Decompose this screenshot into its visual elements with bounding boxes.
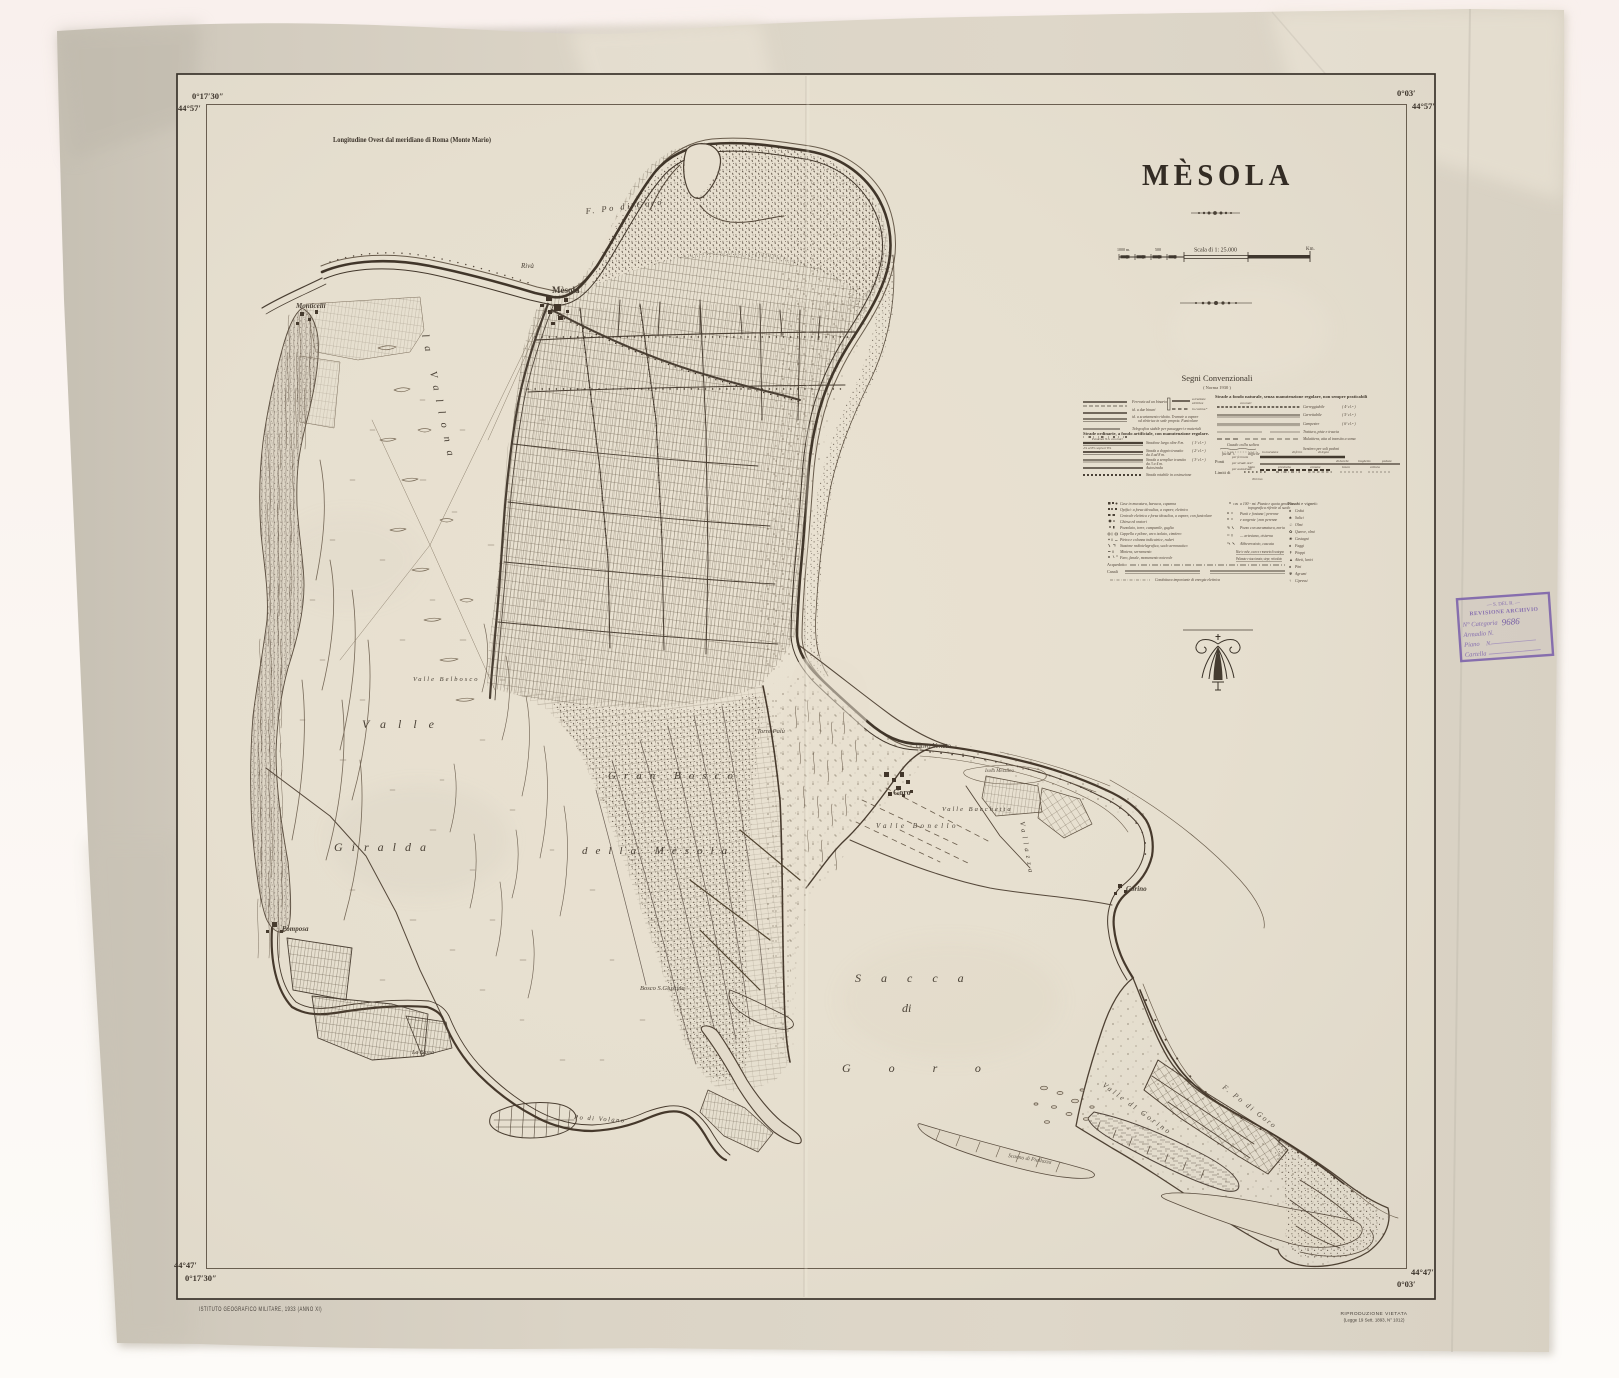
svg-text:44°57′: 44°57′ xyxy=(178,103,201,113)
svg-text:Carrettabile: Carrettabile xyxy=(1303,413,1322,417)
svg-text:Cedui: Cedui xyxy=(1295,509,1304,513)
svg-text:( 1ª cl.ᵐ ): ( 1ª cl.ᵐ ) xyxy=(1192,441,1206,445)
svg-text:Cipressi: Cipressi xyxy=(1295,579,1308,583)
svg-text:Valle: Valle xyxy=(362,717,446,731)
svg-text:44°47′: 44°47′ xyxy=(1411,1267,1434,1277)
svg-text:Punti e fontana | perenne: Punti e fontana | perenne xyxy=(1239,512,1279,516)
svg-text:Pendenze N.S. con: Pendenze N.S. con muri xyxy=(1091,437,1123,441)
svg-text:( 3ª cl.ᵐ ): ( 3ª cl.ᵐ ) xyxy=(1192,458,1206,462)
svg-text:RIPRODUZIONE VIETATA: RIPRODUZIONE VIETATA xyxy=(1340,1311,1407,1317)
svg-text:Pioppi: Pioppi xyxy=(1294,551,1305,555)
svg-text:Valle Bonello: Valle Bonello xyxy=(876,822,959,830)
svg-text:traghetto: traghetto xyxy=(1358,459,1371,463)
svg-text:♣: ♣ xyxy=(1289,515,1292,520)
svg-text:Piano: Piano xyxy=(1463,641,1481,649)
svg-text:Chiesa ed oratori: Chiesa ed oratori xyxy=(1120,520,1147,524)
svg-text:Autostrada: Autostrada xyxy=(1145,466,1163,470)
svg-text:coltura: coltura xyxy=(1370,465,1380,469)
svg-text:Segni Convenzionali: Segni Convenzionali xyxy=(1181,373,1253,383)
svg-text:Limiti di: Limiti di xyxy=(1215,470,1231,475)
svg-text:Castagni: Castagni xyxy=(1295,537,1309,541)
svg-text:elettrica: elettrica xyxy=(1192,401,1204,405)
svg-text:199: 199 xyxy=(1233,502,1238,506)
svg-text:↟: ↟ xyxy=(1289,550,1292,555)
svg-text:ISTITUTO GEOGRAFICO MILITARE,: ISTITUTO GEOGRAFICO MILITARE, 1933 (ANNO… xyxy=(199,1307,322,1313)
svg-text:Mèsola: Mèsola xyxy=(552,285,580,295)
svg-text:con muri: con muri xyxy=(1240,401,1252,405)
svg-text:Guado colla saliva: Guado colla saliva xyxy=(1227,442,1259,447)
svg-text:▲: ▲ xyxy=(1289,557,1293,562)
svg-text:Goro: Goro xyxy=(842,1061,1019,1075)
svg-text:e sorgente | non perenn: e sorgente | non perenne xyxy=(1240,518,1278,522)
svg-text:0°17′30″: 0°17′30″ xyxy=(185,1273,217,1283)
svg-text:Stato: Stato xyxy=(1248,465,1255,469)
svg-text:Faggi: Faggi xyxy=(1294,544,1304,548)
svg-text:Canali: Canali xyxy=(1107,569,1119,574)
svg-text:Isola Mezzano: Isola Mezzano xyxy=(984,769,1015,774)
svg-text:di ferro: di ferro xyxy=(1292,450,1302,454)
svg-text:Strade ordinarie, a fondo arti: Strade ordinarie, a fondo artificiale, c… xyxy=(1083,431,1209,436)
svg-text:Pini: Pini xyxy=(1294,565,1301,569)
svg-text:La Bassa: La Bassa xyxy=(411,1050,434,1056)
svg-text:( 6ª cl.ᵐ ): ( 6ª cl.ᵐ ) xyxy=(1342,422,1356,426)
svg-text:Scala di 1: 25.000: Scala di 1: 25.000 xyxy=(1194,247,1237,254)
svg-text:Salici: Salici xyxy=(1295,516,1304,520)
svg-text:topografica riferite al suolo: topografica riferite al suolo xyxy=(1248,506,1290,510)
svg-text:Goro: Goro xyxy=(893,788,911,797)
svg-text:44°57′: 44°57′ xyxy=(1412,101,1435,111)
svg-text:Boschi e vigneti:: Boschi e vigneti: xyxy=(1288,501,1318,506)
svg-text:provincia: provincia xyxy=(1277,465,1291,469)
svg-text:in muratura: in muratura xyxy=(1262,450,1279,454)
svg-text:od elettrica in sede propria.: od elettrica in sede propria. Funicolare xyxy=(1138,419,1198,423)
svg-text:Agrumi: Agrumi xyxy=(1294,572,1306,576)
svg-text:Acquedotto: Acquedotto xyxy=(1107,562,1127,567)
svg-text:Campestre: Campestre xyxy=(1303,422,1320,426)
svg-text:di legno: di legno xyxy=(1318,450,1329,454)
svg-text:↑: ↑ xyxy=(1289,578,1291,583)
svg-text:Torre Palù: Torre Palù xyxy=(757,728,786,735)
svg-text:Terreno: Terreno xyxy=(1252,477,1263,481)
svg-text:0°03′: 0°03′ xyxy=(1397,88,1416,98)
svg-text:Ferrovia ad un binario: Ferrovia ad un binario xyxy=(1131,400,1167,404)
svg-text:Rivà: Rivà xyxy=(520,262,534,270)
svg-text:difficile: difficile xyxy=(1248,452,1260,456)
svg-text:44°47′: 44°47′ xyxy=(174,1260,197,1270)
svg-text:bosco: bosco xyxy=(1342,465,1350,469)
svg-text:comune: comune xyxy=(1310,465,1321,469)
svg-text:Km.: Km. xyxy=(1306,247,1315,252)
svg-text:Strada rotabile in costruzione: Strada rotabile in costruzione xyxy=(1146,473,1192,477)
svg-text:Condottura importante di energ: Condottura importante di energia elettri… xyxy=(1155,578,1220,582)
svg-text:Giralda: Giralda xyxy=(334,840,435,854)
svg-text:Gran Bosco: Gran Bosco xyxy=(608,770,741,782)
svg-text:Strade a fondo naturale, senza: Strade a fondo naturale, senza manutenzi… xyxy=(1215,394,1368,399)
svg-text:Longitudine Ovest dal meridian: Longitudine Ovest dal meridiano di Roma … xyxy=(333,136,492,144)
svg-text:di: di xyxy=(902,1001,911,1015)
svg-text:Bosco S.Giustina: Bosco S.Giustina xyxy=(640,985,685,992)
svg-text:Monticelli: Monticelli xyxy=(295,302,326,310)
svg-text:1000 m.: 1000 m. xyxy=(1117,247,1130,252)
svg-text:♧: ♧ xyxy=(1289,522,1293,527)
svg-text:0°03′: 0°03′ xyxy=(1397,1279,1416,1289)
svg-text:Gorino: Gorino xyxy=(1126,885,1147,893)
svg-text:Ponti: Ponti xyxy=(1215,459,1225,464)
svg-text:Sacca: Sacca xyxy=(855,971,984,985)
svg-text:facile: facile xyxy=(1222,452,1231,456)
svg-text:Carreggiabile: Carreggiabile xyxy=(1303,405,1325,409)
svg-text:500: 500 xyxy=(1155,247,1161,252)
svg-text:Olmi: Olmi xyxy=(1295,523,1303,527)
svg-text:( 5ª cl.ᵐ ): ( 5ª cl.ᵐ ) xyxy=(1342,413,1356,417)
svg-text:9686: 9686 xyxy=(1501,616,1520,627)
svg-text:in costruz.ⁿ: in costruz.ⁿ xyxy=(1192,407,1208,411)
svg-text:(Legge 19 Sett. 1893, N° 1012): (Legge 19 Sett. 1893, N° 1012) xyxy=(1344,1318,1405,1323)
svg-text:4% al 8% sopra il 8%: 4% al 8% sopra il 8% xyxy=(1083,446,1112,450)
svg-text:della Mèsola: della Mèsola xyxy=(582,845,735,857)
svg-text:( 4ª cl.ᵐ ): ( 4ª cl.ᵐ ) xyxy=(1342,405,1356,409)
svg-text:MÈSOLA: MÈSOLA xyxy=(1142,157,1294,192)
svg-text:Goro Veneto: Goro Veneto xyxy=(916,742,951,750)
svg-text:0°17′30″: 0°17′30″ xyxy=(192,91,224,101)
svg-text:di barche: di barche xyxy=(1336,459,1349,463)
svg-text:per ferrovia: per ferrovia xyxy=(1231,455,1248,459)
svg-text:pedone: pedone xyxy=(1381,459,1392,463)
svg-text:N.: N. xyxy=(1485,641,1492,647)
svg-text:Valle Belbosco: Valle Belbosco xyxy=(413,676,479,683)
svg-text:( 2ª cl.ᵐ ): ( 2ª cl.ᵐ ) xyxy=(1192,449,1206,453)
svg-text:id. a due binari: id. a due binari xyxy=(1132,408,1155,412)
svg-text:da 4 ad 8 m.: da 4 ad 8 m. xyxy=(1146,453,1165,457)
svg-text:Pomposa: Pomposa xyxy=(282,925,309,933)
svg-text:Stradone largo oltre 8 m.: Stradone largo oltre 8 m. xyxy=(1146,441,1184,445)
svg-text:Valle Bacchetta: Valle Bacchetta xyxy=(942,806,1013,813)
svg-text:( Norma 1930 ): ( Norma 1930 ) xyxy=(1203,385,1231,390)
